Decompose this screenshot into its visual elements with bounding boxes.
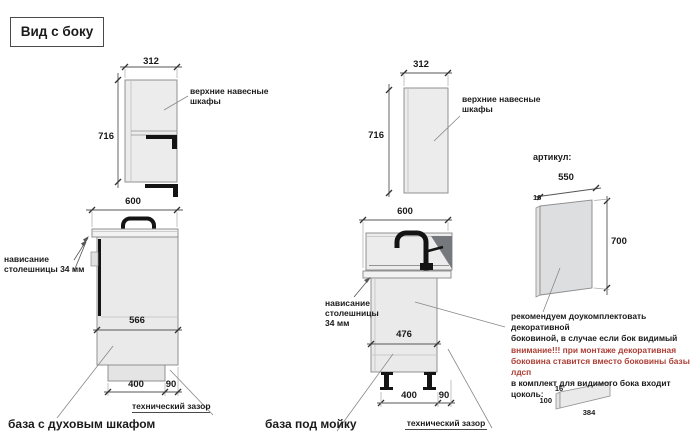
decorative-panel-drawing xyxy=(536,200,592,297)
left-upper-width-dim: 312 xyxy=(143,56,159,67)
oven-base-plinth-dim: 400 xyxy=(128,379,144,390)
oven-base-caption: база с духовым шкафом xyxy=(8,417,155,431)
oven-base-cabinet-drawing xyxy=(91,219,178,382)
note-line-3-warning: внимание!!! при монтаже декоративная xyxy=(511,345,700,356)
oven-base-overhang-line2: столешницы 34 мм xyxy=(4,264,84,274)
oven-base-body-dim: 566 xyxy=(129,315,145,326)
oven-base-gap-dim: 90 xyxy=(166,379,177,390)
oven-base-overhang-line1: нависание xyxy=(4,254,84,264)
plinth-length-dim: 384 xyxy=(583,408,596,417)
middle-upper-cabinet-drawing xyxy=(404,88,448,193)
sink-base-legs xyxy=(380,372,436,390)
panel-height-dim: 700 xyxy=(611,236,627,247)
sink-base-overhang-line1: нависание xyxy=(325,298,379,308)
oven-base-overhang-label: нависание столешницы 34 мм xyxy=(4,254,84,274)
middle-upper-cabinet-label: верхние навесные шкафы xyxy=(462,94,541,114)
left-upper-cabinet-drawing xyxy=(125,80,178,197)
oven-base-width-dim: 600 xyxy=(125,196,141,207)
sink-base-overhang-label: нависание столешницы 34 мм xyxy=(325,298,379,328)
overhang-arrowhead-2 xyxy=(81,240,87,247)
left-upper-cabinet-label: верхние навесные шкафы xyxy=(190,86,269,106)
sink-base-gap-dim: 90 xyxy=(439,390,450,401)
sink-base-caption: база под мойку xyxy=(265,417,357,431)
view-title-box: Вид с боку xyxy=(10,17,104,47)
middle-upper-cabinet-label-line2: шкафы xyxy=(462,104,541,114)
left-upper-height-dim: 716 xyxy=(88,131,114,142)
sink-base-body-dim: 476 xyxy=(396,329,412,340)
sink-base-overhang-line2: столешницы xyxy=(325,308,379,318)
left-upper-cabinet-label-line2: шкафы xyxy=(190,96,269,106)
sink-base-tech-gap-label: технический зазор xyxy=(405,418,487,430)
side-view-drawing-page: Вид с боку 312 716 верхние навесные шкаф… xyxy=(0,0,700,438)
panel-width-dim: 550 xyxy=(558,172,574,183)
left-upper-cabinet-label-line1: верхние навесные xyxy=(190,86,269,96)
sink-base-width-dim: 600 xyxy=(397,206,413,217)
oven-base-tech-gap-label: технический зазор xyxy=(132,401,210,413)
note-line-1: рекомендуем доукомплектовать декоративно… xyxy=(511,311,700,333)
note-line-4-warning: боковина ставится вместо боковины базы л… xyxy=(511,356,700,378)
panel-thickness-dim: 16 xyxy=(533,193,541,202)
page-title: Вид с боку xyxy=(21,24,93,39)
sink-base-plinth-dim: 400 xyxy=(401,390,417,401)
article-label: артикул: xyxy=(533,152,571,162)
note-line-2: боковиной, в случае если бок видимый xyxy=(511,333,700,344)
middle-upper-width-dim: 312 xyxy=(413,59,429,70)
plinth-thickness-dim: 16 xyxy=(555,384,563,393)
decorative-panel-note: рекомендуем доукомплектовать декоративно… xyxy=(511,311,700,401)
middle-upper-height-dim: 716 xyxy=(358,130,384,141)
middle-upper-cabinet-label-line1: верхние навесные xyxy=(462,94,541,104)
plinth-height-dim: 100 xyxy=(534,396,552,405)
sink-base-overhang-line3: 34 мм xyxy=(325,318,379,328)
